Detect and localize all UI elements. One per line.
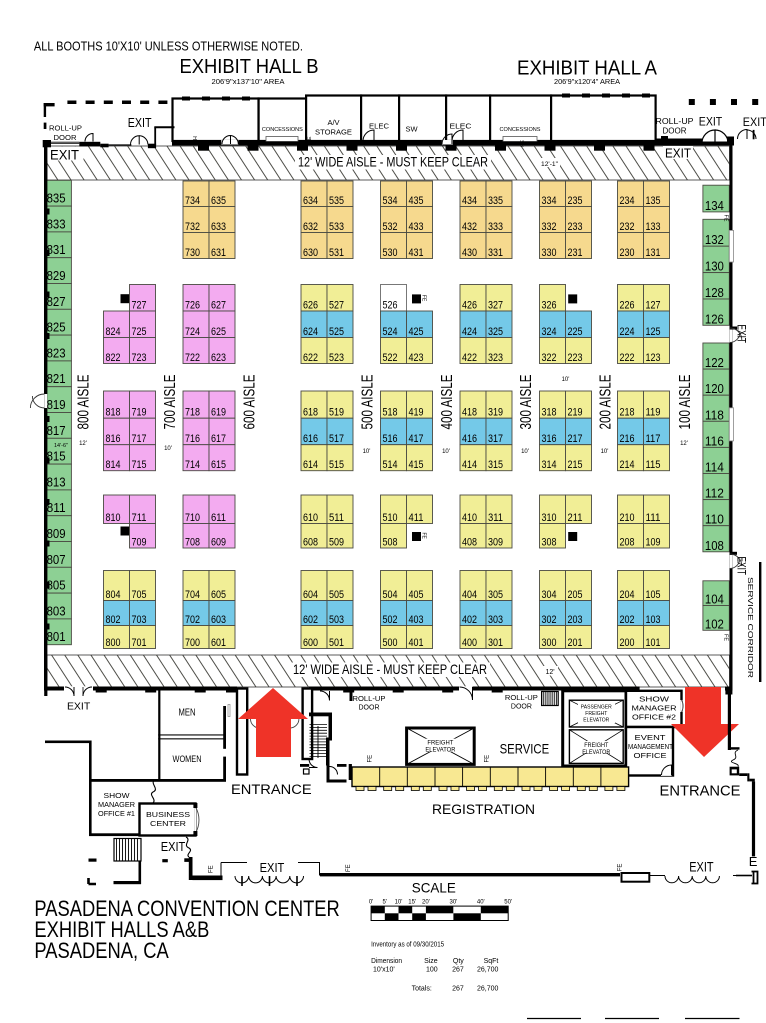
- svg-text:EXIT: EXIT: [699, 115, 723, 129]
- svg-text:ELEC: ELEC: [450, 122, 473, 131]
- svg-text:432: 432: [462, 221, 477, 233]
- svg-text:618: 618: [303, 407, 318, 419]
- svg-text:516: 516: [383, 433, 398, 445]
- svg-text:503: 503: [329, 614, 344, 626]
- svg-text:5': 5': [383, 900, 387, 906]
- svg-text:214: 214: [620, 459, 635, 471]
- svg-text:314: 314: [542, 459, 557, 471]
- svg-text:FREIGHT: FREIGHT: [585, 711, 608, 717]
- svg-text:527: 527: [329, 300, 344, 312]
- svg-text:FE: FE: [346, 864, 352, 872]
- svg-text:431: 431: [409, 247, 424, 259]
- svg-text:833: 833: [47, 217, 66, 231]
- svg-text:FE: FE: [421, 533, 427, 540]
- svg-text:EXIT: EXIT: [128, 115, 152, 130]
- svg-text:120: 120: [705, 382, 724, 396]
- svg-text:235: 235: [568, 195, 583, 207]
- svg-text:203: 203: [568, 614, 583, 626]
- svg-text:611: 611: [211, 512, 226, 524]
- svg-text:Size: Size: [424, 958, 438, 965]
- svg-text:127: 127: [646, 300, 661, 312]
- svg-text:614: 614: [303, 459, 318, 471]
- svg-text:108: 108: [705, 539, 724, 553]
- svg-text:625: 625: [211, 326, 226, 338]
- svg-text:118: 118: [705, 408, 724, 422]
- svg-text:632: 632: [303, 221, 318, 233]
- svg-text:829: 829: [47, 269, 66, 283]
- svg-text:ENTRANCE: ENTRANCE: [660, 784, 741, 800]
- svg-text:525: 525: [329, 326, 344, 338]
- svg-text:PASADENA, CA: PASADENA, CA: [34, 938, 169, 963]
- svg-text:40': 40': [477, 900, 485, 906]
- svg-text:215: 215: [568, 459, 583, 471]
- svg-text:10': 10': [562, 377, 570, 383]
- svg-text:12' WIDE AISLE - MUST KEEP CLE: 12' WIDE AISLE - MUST KEEP CLEAR: [298, 154, 488, 170]
- svg-text:EVENT: EVENT: [635, 733, 667, 742]
- svg-text:324: 324: [542, 326, 557, 338]
- svg-text:204: 204: [620, 589, 635, 601]
- svg-text:110: 110: [705, 513, 724, 527]
- svg-text:730: 730: [185, 247, 200, 259]
- svg-text:CENTER: CENTER: [150, 819, 187, 828]
- svg-text:504: 504: [383, 589, 398, 601]
- svg-text:FH: FH: [193, 136, 199, 143]
- svg-text:MANAGEMENT: MANAGEMENT: [628, 742, 673, 751]
- svg-text:14'-6": 14'-6": [54, 443, 68, 449]
- svg-text:434: 434: [462, 195, 477, 207]
- svg-text:FE: FE: [421, 295, 427, 302]
- svg-text:300: 300: [542, 637, 557, 649]
- svg-text:12'-1": 12'-1": [541, 161, 559, 168]
- svg-text:723: 723: [132, 352, 147, 364]
- svg-text:111: 111: [646, 512, 661, 524]
- svg-text:133: 133: [646, 221, 661, 233]
- svg-text:505: 505: [329, 589, 344, 601]
- svg-text:132: 132: [705, 233, 724, 247]
- svg-text:SERVICE CORRIDOR: SERVICE CORRIDOR: [746, 577, 755, 679]
- svg-text:502: 502: [383, 614, 398, 626]
- svg-text:823: 823: [47, 346, 66, 360]
- svg-text:835: 835: [47, 192, 66, 206]
- svg-text:FE: FE: [307, 136, 313, 143]
- svg-text:408: 408: [462, 537, 477, 549]
- svg-text:305: 305: [488, 589, 503, 601]
- svg-text:616: 616: [303, 433, 318, 445]
- svg-text:719: 719: [132, 407, 147, 419]
- svg-text:211: 211: [568, 512, 583, 524]
- svg-text:109: 109: [646, 537, 661, 549]
- svg-text:OFFICE #1: OFFICE #1: [98, 809, 135, 818]
- svg-text:ROLL-UP: ROLL-UP: [49, 124, 82, 133]
- svg-text:10': 10': [442, 449, 450, 455]
- svg-text:308: 308: [542, 537, 557, 549]
- svg-text:508: 508: [383, 537, 398, 549]
- svg-text:FE: FE: [485, 755, 491, 763]
- svg-text:12': 12': [680, 441, 688, 447]
- svg-text:102: 102: [705, 617, 724, 631]
- svg-text:134: 134: [705, 199, 724, 213]
- svg-text:FE: FE: [209, 865, 215, 873]
- svg-text:303: 303: [488, 614, 503, 626]
- svg-text:A/V: A/V: [327, 118, 339, 127]
- svg-text:814: 814: [106, 459, 121, 471]
- svg-text:114: 114: [705, 461, 724, 475]
- svg-text:534: 534: [383, 195, 398, 207]
- svg-text:123: 123: [646, 352, 661, 364]
- svg-text:435: 435: [409, 195, 424, 207]
- svg-text:400 AISLE: 400 AISLE: [439, 375, 456, 430]
- svg-text:430: 430: [462, 247, 477, 259]
- svg-text:FE: FE: [368, 755, 374, 763]
- svg-text:210: 210: [620, 512, 635, 524]
- svg-text:DOOR: DOOR: [54, 133, 78, 142]
- svg-text:10': 10': [521, 449, 529, 455]
- svg-text:518: 518: [383, 407, 398, 419]
- svg-text:322: 322: [542, 352, 557, 364]
- svg-text:REGISTRATION: REGISTRATION: [432, 801, 535, 817]
- svg-text:E: E: [749, 854, 758, 869]
- svg-text:802: 802: [106, 614, 121, 626]
- svg-text:800 AISLE: 800 AISLE: [75, 375, 92, 430]
- svg-text:SHOW: SHOW: [639, 695, 670, 704]
- svg-text:ELEVATOR: ELEVATOR: [582, 750, 611, 756]
- svg-text:SqFt: SqFt: [484, 958, 499, 965]
- svg-text:634: 634: [303, 195, 318, 207]
- svg-text:608: 608: [303, 537, 318, 549]
- svg-text:635: 635: [211, 195, 226, 207]
- svg-text:411: 411: [409, 512, 424, 524]
- svg-text:332: 332: [542, 221, 557, 233]
- svg-text:EXHIBIT HALL B: EXHIBIT HALL B: [180, 55, 319, 78]
- svg-text:804: 804: [106, 589, 121, 601]
- svg-text:267: 267: [452, 986, 464, 993]
- svg-text:128: 128: [705, 286, 724, 300]
- svg-text:MANAGER: MANAGER: [98, 800, 136, 809]
- svg-text:609: 609: [211, 537, 226, 549]
- svg-text:EXIT: EXIT: [260, 860, 285, 875]
- svg-text:SW: SW: [405, 125, 418, 134]
- svg-text:315: 315: [488, 459, 503, 471]
- svg-text:105: 105: [646, 589, 661, 601]
- svg-text:ALL BOOTHS 10'X10' UNLESS OTHE: ALL BOOTHS 10'X10' UNLESS OTHERWISE NOTE…: [34, 40, 303, 54]
- svg-text:423: 423: [409, 352, 424, 364]
- svg-text:131: 131: [646, 247, 661, 259]
- svg-text:ROLL-UP: ROLL-UP: [656, 117, 694, 126]
- svg-text:234: 234: [620, 195, 635, 207]
- svg-text:817: 817: [47, 424, 66, 438]
- svg-text:311: 311: [488, 512, 503, 524]
- svg-text:316: 316: [542, 433, 557, 445]
- svg-text:PASSENGER: PASSENGER: [581, 705, 612, 711]
- svg-text:415: 415: [409, 459, 424, 471]
- svg-text:709: 709: [132, 537, 147, 549]
- svg-text:405: 405: [409, 589, 424, 601]
- svg-text:807: 807: [47, 553, 66, 567]
- svg-text:631: 631: [211, 247, 226, 259]
- svg-text:601: 601: [211, 637, 226, 649]
- svg-text:BUSINESS: BUSINESS: [146, 810, 190, 819]
- svg-text:600: 600: [303, 637, 318, 649]
- svg-text:700 AISLE: 700 AISLE: [162, 375, 179, 430]
- svg-text:335: 335: [488, 195, 503, 207]
- svg-text:EXIT: EXIT: [743, 115, 766, 129]
- svg-text:10': 10': [363, 449, 371, 455]
- svg-text:232: 232: [620, 221, 635, 233]
- svg-text:10': 10': [601, 449, 609, 455]
- svg-text:401: 401: [409, 637, 424, 649]
- svg-text:304: 304: [542, 589, 557, 601]
- svg-text:330: 330: [542, 247, 557, 259]
- svg-text:309: 309: [488, 537, 503, 549]
- svg-text:424: 424: [462, 326, 477, 338]
- svg-text:CONCESSIONS: CONCESSIONS: [262, 127, 303, 133]
- svg-text:267: 267: [452, 967, 464, 974]
- svg-text:302: 302: [542, 614, 557, 626]
- svg-text:FE: FE: [617, 864, 623, 872]
- svg-text:200: 200: [620, 637, 635, 649]
- svg-text:Qty: Qty: [453, 958, 464, 965]
- svg-text:226: 226: [620, 300, 635, 312]
- svg-text:626: 626: [303, 300, 318, 312]
- svg-text:ELEVATOR: ELEVATOR: [425, 748, 456, 754]
- svg-text:EXIT: EXIT: [161, 839, 186, 854]
- svg-text:705: 705: [132, 589, 147, 601]
- svg-text:410: 410: [462, 512, 477, 524]
- svg-text:726: 726: [185, 300, 200, 312]
- svg-text:SCALE: SCALE: [412, 880, 456, 896]
- svg-text:318: 318: [542, 407, 557, 419]
- svg-text:206'9"x120'4" AREA: 206'9"x120'4" AREA: [554, 79, 620, 86]
- svg-text:FE: FE: [520, 140, 526, 147]
- svg-text:822: 822: [106, 352, 121, 364]
- svg-text:CONCESSIONS: CONCESSIONS: [500, 127, 541, 133]
- svg-text:517: 517: [329, 433, 344, 445]
- svg-text:703: 703: [132, 614, 147, 626]
- svg-text:WOMEN: WOMEN: [173, 754, 202, 765]
- svg-text:708: 708: [185, 537, 200, 549]
- svg-text:819: 819: [47, 398, 66, 412]
- svg-text:15': 15': [408, 900, 416, 906]
- svg-text:26,700: 26,700: [477, 986, 499, 993]
- svg-text:627: 627: [211, 300, 226, 312]
- svg-text:205: 205: [568, 589, 583, 601]
- svg-text:200 AISLE: 200 AISLE: [597, 375, 614, 430]
- svg-text:ENTRANCE: ENTRANCE: [231, 782, 312, 797]
- svg-text:EXIT: EXIT: [67, 701, 91, 713]
- svg-text:10': 10': [164, 446, 172, 452]
- svg-text:418: 418: [462, 407, 477, 419]
- svg-text:722: 722: [185, 352, 200, 364]
- svg-text:623: 623: [211, 352, 226, 364]
- svg-text:704: 704: [185, 589, 200, 601]
- svg-text:DOOR: DOOR: [511, 702, 533, 711]
- svg-text:426: 426: [462, 300, 477, 312]
- svg-text:602: 602: [303, 614, 318, 626]
- svg-text:12': 12': [79, 441, 87, 447]
- svg-text:701: 701: [132, 637, 147, 649]
- svg-text:734: 734: [185, 195, 200, 207]
- svg-text:EXIT: EXIT: [665, 147, 691, 161]
- svg-text:422: 422: [462, 352, 477, 364]
- svg-text:218: 218: [620, 407, 635, 419]
- svg-text:724: 724: [185, 326, 200, 338]
- svg-text:727: 727: [132, 300, 147, 312]
- svg-text:Dimension: Dimension: [371, 958, 402, 965]
- svg-text:EXIT: EXIT: [50, 148, 79, 163]
- svg-text:100: 100: [426, 967, 438, 974]
- svg-text:331: 331: [488, 247, 503, 259]
- svg-text:700: 700: [185, 637, 200, 649]
- svg-text:119: 119: [646, 407, 661, 419]
- svg-text:810: 810: [106, 512, 121, 524]
- svg-text:Inventory as of 09/30/2015: Inventory as of 09/30/2015: [371, 942, 444, 949]
- svg-text:STORAGE: STORAGE: [315, 128, 352, 137]
- svg-text:206'9"x137'10" AREA: 206'9"x137'10" AREA: [212, 79, 285, 86]
- svg-text:20': 20': [422, 900, 430, 906]
- svg-text:800: 800: [106, 637, 121, 649]
- svg-text:417: 417: [409, 433, 424, 445]
- svg-text:824: 824: [106, 326, 121, 338]
- svg-text:OFFICE: OFFICE: [634, 751, 667, 760]
- svg-text:509: 509: [329, 537, 344, 549]
- svg-text:615: 615: [211, 459, 226, 471]
- svg-text:12' WIDE AISLE - MUST KEEP CLE: 12' WIDE AISLE - MUST KEEP CLEAR: [293, 661, 487, 677]
- svg-text:231: 231: [568, 247, 583, 259]
- svg-text:416: 416: [462, 433, 477, 445]
- svg-text:117: 117: [646, 433, 661, 445]
- svg-text:630: 630: [303, 247, 318, 259]
- svg-text:FREIGHT: FREIGHT: [427, 741, 453, 747]
- svg-text:Totals:: Totals:: [412, 986, 432, 993]
- svg-text:522: 522: [383, 352, 398, 364]
- svg-text:125: 125: [646, 326, 661, 338]
- svg-text:535: 535: [329, 195, 344, 207]
- svg-text:327: 327: [488, 300, 503, 312]
- svg-text:301: 301: [488, 637, 503, 649]
- svg-text:217: 217: [568, 433, 583, 445]
- svg-text:SERVICE: SERVICE: [500, 741, 550, 757]
- svg-text:821: 821: [47, 372, 66, 386]
- svg-text:26,700: 26,700: [477, 967, 499, 974]
- svg-text:610: 610: [303, 512, 318, 524]
- svg-text:532: 532: [383, 221, 398, 233]
- svg-text:317: 317: [488, 433, 503, 445]
- svg-text:MEN: MEN: [179, 708, 196, 719]
- svg-text:122: 122: [705, 356, 724, 370]
- svg-text:710: 710: [185, 512, 200, 524]
- svg-text:FE: FE: [723, 634, 729, 641]
- svg-text:414: 414: [462, 459, 477, 471]
- svg-text:100 AISLE: 100 AISLE: [677, 375, 694, 430]
- svg-text:403: 403: [409, 614, 424, 626]
- svg-text:816: 816: [106, 433, 121, 445]
- svg-text:702: 702: [185, 614, 200, 626]
- svg-text:219: 219: [568, 407, 583, 419]
- svg-text:619: 619: [211, 407, 226, 419]
- svg-text:SHOW: SHOW: [104, 791, 131, 800]
- svg-text:400: 400: [462, 637, 477, 649]
- svg-text:515: 515: [329, 459, 344, 471]
- svg-text:510: 510: [383, 512, 398, 524]
- svg-text:10'x10': 10'x10': [373, 967, 395, 974]
- svg-text:732: 732: [185, 221, 200, 233]
- svg-text:511: 511: [329, 512, 344, 524]
- svg-text:103: 103: [646, 614, 661, 626]
- svg-text:530: 530: [383, 247, 398, 259]
- svg-text:813: 813: [47, 475, 66, 489]
- svg-text:715: 715: [132, 459, 147, 471]
- svg-text:126: 126: [705, 312, 724, 326]
- svg-text:333: 333: [488, 221, 503, 233]
- svg-text:DOOR: DOOR: [663, 127, 687, 136]
- svg-text:801: 801: [47, 630, 66, 644]
- svg-text:717: 717: [132, 433, 147, 445]
- svg-text:500: 500: [383, 637, 398, 649]
- svg-text:524: 524: [383, 326, 398, 338]
- svg-text:30': 30': [449, 900, 457, 906]
- svg-text:OFFICE #2: OFFICE #2: [632, 713, 676, 722]
- svg-text:531: 531: [329, 247, 344, 259]
- svg-text:323: 323: [488, 352, 503, 364]
- svg-text:500 AISLE: 500 AISLE: [359, 375, 376, 430]
- svg-text:803: 803: [47, 604, 66, 618]
- svg-text:101: 101: [646, 637, 661, 649]
- svg-text:622: 622: [303, 352, 318, 364]
- svg-text:FE: FE: [723, 215, 729, 222]
- svg-text:222: 222: [620, 352, 635, 364]
- svg-text:617: 617: [211, 433, 226, 445]
- svg-text:604: 604: [303, 589, 318, 601]
- svg-text:325: 325: [488, 326, 503, 338]
- svg-text:230: 230: [620, 247, 635, 259]
- svg-text:809: 809: [47, 527, 66, 541]
- svg-text:EXIT: EXIT: [735, 325, 747, 344]
- svg-text:725: 725: [132, 326, 147, 338]
- svg-text:404: 404: [462, 589, 477, 601]
- svg-text:130: 130: [705, 260, 724, 274]
- svg-text:112: 112: [705, 487, 724, 501]
- svg-text:224: 224: [620, 326, 635, 338]
- svg-text:EXIT: EXIT: [689, 860, 713, 875]
- svg-text:225: 225: [568, 326, 583, 338]
- svg-text:12': 12': [545, 669, 554, 676]
- svg-text:233: 233: [568, 221, 583, 233]
- svg-text:115: 115: [646, 459, 661, 471]
- svg-text:201: 201: [568, 637, 583, 649]
- svg-text:603: 603: [211, 614, 226, 626]
- svg-text:135: 135: [646, 195, 661, 207]
- svg-text:319: 319: [488, 407, 503, 419]
- svg-text:718: 718: [185, 407, 200, 419]
- svg-text:425: 425: [409, 326, 424, 338]
- svg-text:MANAGER: MANAGER: [632, 704, 678, 713]
- svg-text:605: 605: [211, 589, 226, 601]
- svg-text:716: 716: [185, 433, 200, 445]
- svg-text:334: 334: [542, 195, 557, 207]
- svg-text:EXHIBIT HALL A: EXHIBIT HALL A: [517, 57, 657, 80]
- svg-text:818: 818: [106, 407, 121, 419]
- svg-text:ELEVATOR: ELEVATOR: [583, 718, 609, 724]
- svg-text:501: 501: [329, 637, 344, 649]
- svg-text:0': 0': [369, 900, 373, 906]
- svg-text:825: 825: [47, 321, 66, 335]
- svg-text:633: 633: [211, 221, 226, 233]
- svg-text:FREIGHT: FREIGHT: [584, 743, 608, 749]
- svg-text:216: 216: [620, 433, 635, 445]
- svg-text:600 AISLE: 600 AISLE: [242, 375, 259, 430]
- svg-text:419: 419: [409, 407, 424, 419]
- svg-text:624: 624: [303, 326, 318, 338]
